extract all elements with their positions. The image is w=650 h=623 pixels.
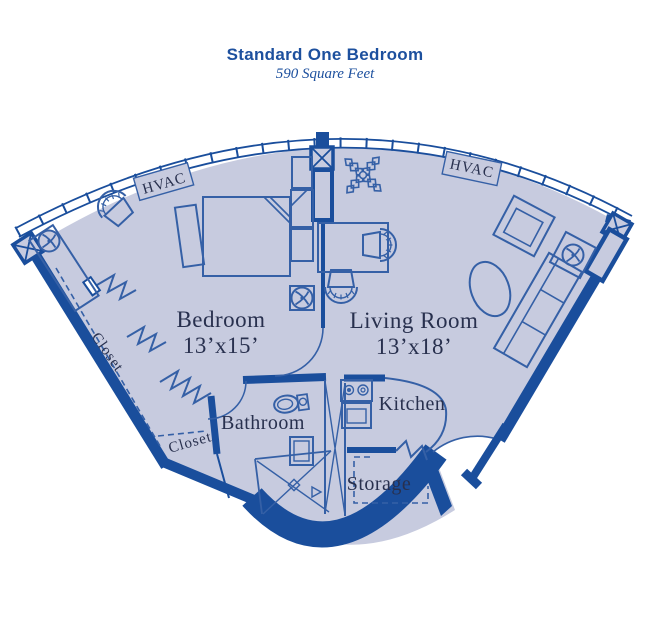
storage-label: Storage <box>347 473 412 495</box>
living-room-label: Living Room <box>350 308 479 333</box>
bedroom-dims: 13’x15’ <box>183 333 259 358</box>
bathroom-top-wall <box>243 377 326 380</box>
ceiling-fan-bedroom-icon <box>292 288 313 309</box>
floor-plan-svg: Bedroom 13’x15’ Living Room 13’x18’ Bath… <box>0 0 650 623</box>
floor-plan-page: Standard One Bedroom 590 Square Feet <box>0 0 650 623</box>
column-stub <box>316 132 329 148</box>
kitchen-label: Kitchen <box>379 393 446 415</box>
bedroom-label: Bedroom <box>176 307 265 332</box>
living-room-dims: 13’x18’ <box>376 334 452 359</box>
divider-wall-shaft <box>313 170 332 220</box>
column-center-icon <box>311 147 333 169</box>
ceiling-fan-left-icon <box>39 231 60 252</box>
bathroom-label: Bathroom <box>221 412 305 434</box>
